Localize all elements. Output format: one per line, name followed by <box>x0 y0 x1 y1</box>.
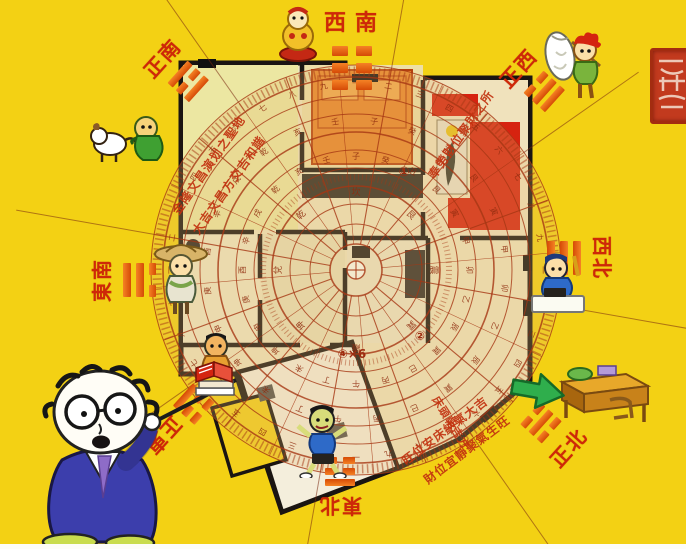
svg-text:兌: 兌 <box>273 265 284 274</box>
svg-text:酉: 酉 <box>238 266 247 274</box>
compass-number: ④×6 <box>338 347 367 361</box>
figure-hat-man <box>150 238 212 316</box>
svg-text:坎: 坎 <box>351 186 360 198</box>
svg-text:甲: 甲 <box>499 245 509 254</box>
figure-sack-boy <box>538 22 618 104</box>
seal-stamp <box>650 48 686 124</box>
compass-number: ② <box>415 329 425 343</box>
direction-southeast-label: 東南 <box>86 258 115 302</box>
svg-text:九: 九 <box>384 449 393 459</box>
figure-jumping-boy <box>290 402 354 478</box>
svg-text:卯: 卯 <box>499 284 509 293</box>
compass-number: ① <box>398 165 409 180</box>
svg-text:卯: 卯 <box>465 266 474 274</box>
trigram-kun <box>332 42 372 93</box>
desk-icon <box>532 296 584 312</box>
direction-southeast: 東南 <box>86 258 159 302</box>
figure-golden-child <box>270 4 326 62</box>
figure-desk-worker <box>522 248 606 318</box>
fengshui-poster: 坎艮震巽離坤兌乾子癸丑艮寅甲卯乙辰巽巳丙午丁未坤申庚酉辛戌乾亥壬子癸丑艮寅甲卯乙… <box>0 0 686 549</box>
direction-southwest: 西南 <box>318 5 386 93</box>
svg-text:午: 午 <box>352 379 360 389</box>
svg-text:丙: 丙 <box>372 413 381 423</box>
figure-reading-boy <box>182 330 246 404</box>
direction-northeast-label: 東北 <box>318 493 362 522</box>
svg-text:壬: 壬 <box>330 116 339 127</box>
svg-text:子: 子 <box>370 117 379 127</box>
svg-text:子: 子 <box>352 152 360 161</box>
direction-southwest-label: 西南 <box>324 5 386 37</box>
figure-dog-and-boy <box>90 106 170 166</box>
svg-text:九: 九 <box>535 233 545 242</box>
bottom-border <box>0 544 686 549</box>
svg-text:震: 震 <box>428 265 439 274</box>
